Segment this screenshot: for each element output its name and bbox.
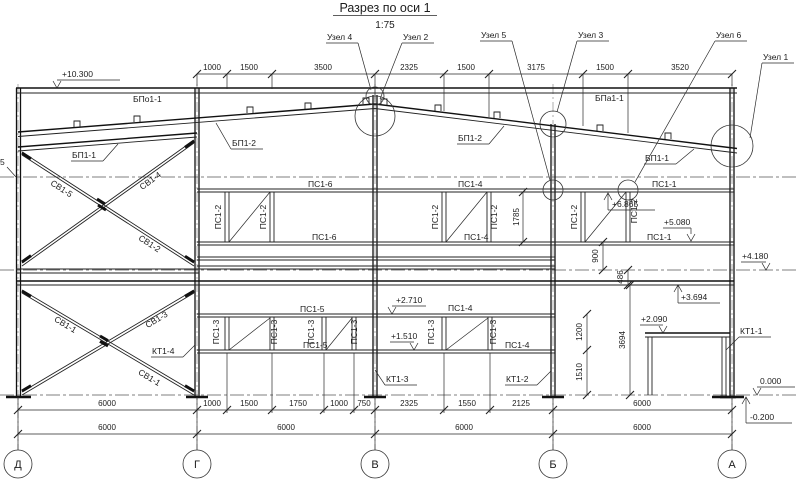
title-block: Разрез по оси 1 1:75 — [339, 1, 430, 31]
label-ps1-3-post5: ПС1-3 — [426, 319, 436, 344]
label-ps1-6-bottom: ПС1-6 — [312, 232, 337, 242]
dimension-chain-top: 1000 1500 3500 2325 1500 3175 1500 3520 — [193, 63, 736, 133]
drawing-scale: 1:75 — [375, 20, 395, 31]
dim-r2-6000c: 6000 — [455, 423, 473, 432]
node-label-3: Узел 3 — [578, 30, 603, 40]
dim-top-1500a: 1500 — [240, 63, 258, 72]
elevation-2090: +2.090 — [641, 314, 668, 324]
axis-label-d: Д — [14, 459, 22, 471]
dim-v-3694: 3694 — [618, 331, 627, 349]
dim-r1-750: 750 — [357, 399, 371, 408]
dim-r1-1000a: 1000 — [203, 399, 221, 408]
label-bp1-2-left: БП1-2 — [232, 138, 256, 148]
node-label-6: Узел 6 — [716, 30, 741, 40]
elevation-3694: +3.694 — [681, 292, 708, 302]
dim-top-1500b: 1500 — [457, 63, 475, 72]
dim-top-3500: 3500 — [314, 63, 332, 72]
label-ps1-4-top: ПС1-4 — [458, 179, 483, 189]
label-ps1-5-top: ПС1-5 — [300, 304, 325, 314]
dim-r2-6000d: 6000 — [633, 423, 651, 432]
label-sv1-1-upper: СВ1-1 — [53, 314, 79, 335]
label-ps1-3-post2: ПС1-3 — [269, 319, 279, 344]
elevation-0000: 0.000 — [760, 376, 782, 386]
label-sv1-4: СВ1-4 — [138, 169, 164, 191]
dim-r1-2125: 2125 — [512, 399, 530, 408]
label-ps1-4-low-top: ПС1-4 — [448, 303, 473, 313]
label-ps1-6-top: ПС1-6 — [308, 179, 333, 189]
label-bp1-2-right: БП1-2 — [458, 133, 482, 143]
top-beam — [16, 88, 737, 93]
dim-r1-6000a: 6000 — [98, 399, 116, 408]
label-ps1-3-post4: ПС1-3 — [349, 319, 359, 344]
label-sv1-1-lower: СВ1-1 — [137, 367, 163, 388]
dim-top-1500c: 1500 — [596, 63, 614, 72]
dim-top-3520: 3520 — [671, 63, 689, 72]
label-ps1-3-post6: ПС1-3 — [488, 319, 498, 344]
label-bpo1-1: БПо1-1 — [133, 94, 162, 104]
elevation-5080: +5.080 — [664, 217, 691, 227]
drawing-title: Разрез по оси 1 — [339, 1, 430, 15]
dim-top-3175: 3175 — [527, 63, 545, 72]
node-label-5: Узел 5 — [481, 30, 506, 40]
elevation-2710: +2.710 — [396, 295, 423, 305]
label-ps1-2-post2: ПС1-2 — [258, 204, 268, 229]
label-ps1-2-post4: ПС1-2 — [489, 204, 499, 229]
dim-r2-6000a: 6000 — [98, 423, 116, 432]
label-ps1-1-bottom: ПС1-1 — [647, 232, 672, 242]
label-ps1-2-post6: ПС1-2 — [629, 198, 639, 223]
dim-v-1510: 1510 — [575, 363, 584, 381]
label-ps1-4-bottom: ПС1-4 — [464, 232, 489, 242]
axis-label-a: А — [728, 459, 736, 471]
section-drawing-sheet: 1000 1500 3500 2325 1500 3175 1500 3520 … — [0, 0, 800, 488]
dim-r1-1500: 1500 — [240, 399, 258, 408]
dim-r2-6000b: 6000 — [277, 423, 295, 432]
node-label-4: Узел 4 — [327, 32, 352, 42]
label-kt1-2: КТ1-2 — [506, 374, 529, 384]
dim-v-1785: 1785 — [512, 208, 521, 226]
dim-r1-1550: 1550 — [458, 399, 476, 408]
fachwerk-lower — [197, 314, 555, 353]
dim-top-1000: 1000 — [203, 63, 221, 72]
kt1-1-support-frame — [645, 333, 736, 397]
label-ps1-3-post1: ПС1-3 — [211, 319, 221, 344]
label-sv1-2: СВ1-2 — [137, 233, 163, 255]
axis-label-v: В — [371, 459, 378, 471]
dim-r1-1000b: 1000 — [330, 399, 348, 408]
label-kt1-4: КТ1-4 — [152, 346, 175, 356]
structural-section-drawing: 1000 1500 3500 2325 1500 3175 1500 3520 … — [0, 0, 800, 488]
node-label-2: Узел 2 — [403, 32, 428, 42]
elevation-4180: +4.180 — [742, 251, 769, 261]
dim-r1-2325: 2325 — [400, 399, 418, 408]
label-bp1-1-right: БП1-1 — [645, 153, 669, 163]
dim-v-486: 486 — [616, 270, 625, 284]
elevation-10300: +10.300 — [62, 69, 93, 79]
label-ps1-4-low-bottom: ПС1-4 — [505, 340, 530, 350]
label-bpa1-1: БПа1-1 — [595, 93, 624, 103]
dim-v-900: 900 — [591, 249, 600, 263]
axis-bubbles: Д Г В Б А — [4, 450, 746, 478]
elevation-marks: +10.300 +6.865 +5.080 +4.180 +3.694 +2.7… — [53, 69, 795, 423]
label-ps1-3-post3: ПС1-3 — [306, 319, 316, 344]
axis-label-b: Б — [549, 459, 556, 471]
node-label-1: Узел 1 — [763, 52, 788, 62]
dim-v-1200: 1200 — [575, 323, 584, 341]
label-ps1-2-post1: ПС1-2 — [213, 204, 223, 229]
label-ps1-2-post5: ПС1-2 — [569, 204, 579, 229]
dim-top-2325: 2325 — [400, 63, 418, 72]
label-kt1-1: КТ1-1 — [740, 326, 763, 336]
dim-r1-6000b: 6000 — [633, 399, 651, 408]
label-kt1-3: КТ1-3 — [386, 374, 409, 384]
elevation-1510: +1.510 — [391, 331, 418, 341]
label-ps1-2-post3: ПС1-2 — [430, 204, 440, 229]
axis-label-g: Г — [194, 459, 200, 471]
label-ps1-1-top: ПС1-1 — [652, 179, 677, 189]
label-bp1-1-left: БП1-1 — [72, 150, 96, 160]
label-edge-5: 5 — [0, 157, 5, 167]
dim-r1-1750: 1750 — [289, 399, 307, 408]
elevation-minus-0200: -0.200 — [750, 412, 774, 422]
